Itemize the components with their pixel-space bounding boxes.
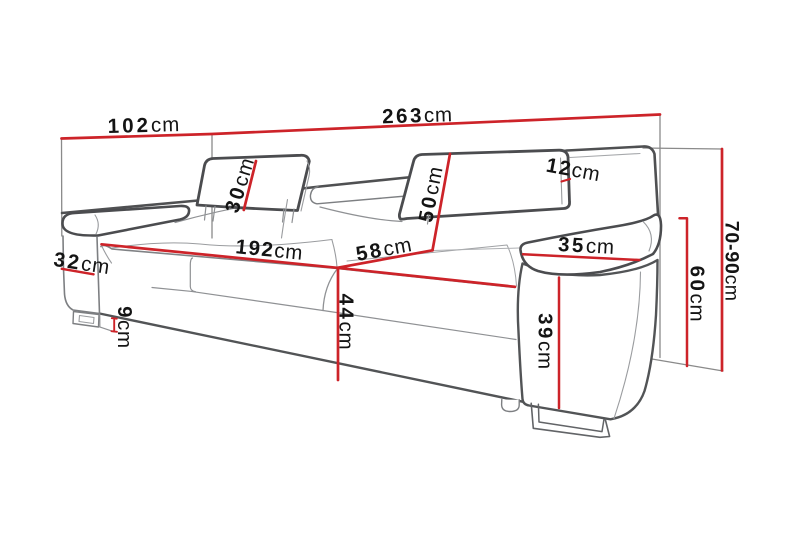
svg-text:70-90cm: 70-90cm	[721, 221, 743, 301]
svg-text:263cm: 263cm	[382, 103, 453, 128]
svg-text:39cm: 39cm	[534, 313, 557, 370]
svg-text:9cm: 9cm	[113, 306, 136, 349]
svg-text:60cm: 60cm	[686, 266, 709, 323]
svg-text:44cm: 44cm	[335, 294, 358, 351]
svg-text:35cm: 35cm	[558, 233, 616, 259]
svg-text:102cm: 102cm	[107, 113, 180, 138]
